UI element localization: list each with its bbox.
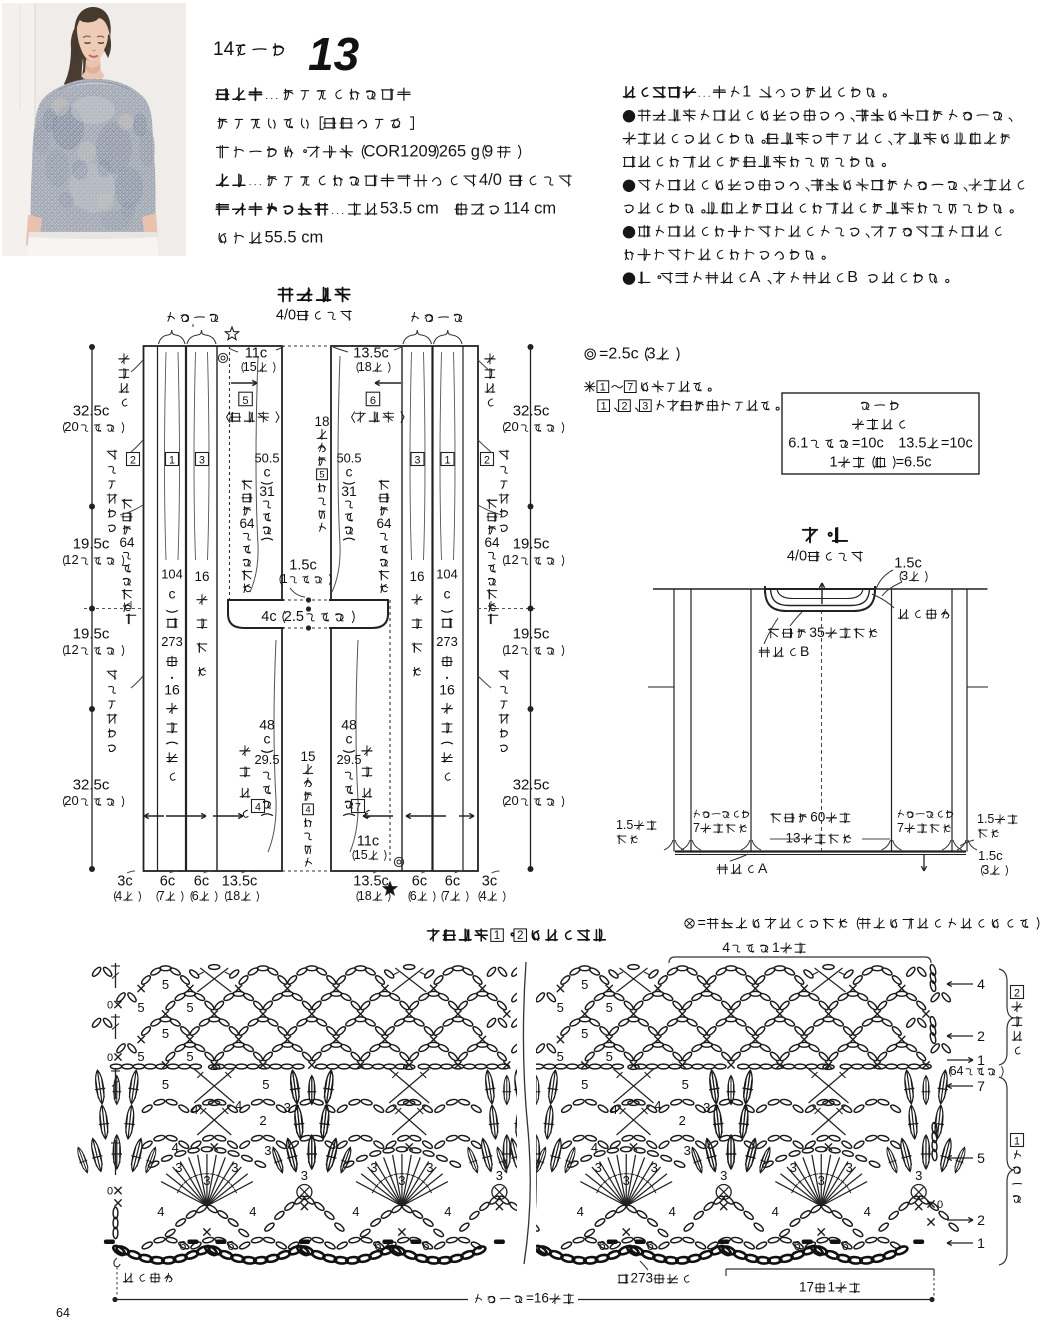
svg-text:17: 17 xyxy=(799,1280,814,1295)
svg-text:3: 3 xyxy=(415,455,421,467)
svg-text:5: 5 xyxy=(137,1049,144,1064)
svg-text:4: 4 xyxy=(610,1102,617,1117)
svg-text:12: 12 xyxy=(504,642,518,657)
svg-text:18: 18 xyxy=(314,414,329,429)
svg-text:6c: 6c xyxy=(194,873,209,889)
svg-text:2: 2 xyxy=(977,1212,985,1228)
svg-text:1.5c: 1.5c xyxy=(289,557,316,573)
svg-text:7: 7 xyxy=(693,821,700,835)
svg-text:7: 7 xyxy=(355,802,361,814)
svg-text:c: c xyxy=(264,730,271,746)
svg-text:B: B xyxy=(847,269,858,286)
svg-text:2: 2 xyxy=(977,1028,985,1044)
svg-text:55.5 cm: 55.5 cm xyxy=(265,228,324,246)
svg-text:13: 13 xyxy=(786,831,801,846)
svg-text:13.5c: 13.5c xyxy=(222,873,257,889)
svg-text:7: 7 xyxy=(158,889,165,903)
svg-text:7: 7 xyxy=(897,821,904,835)
svg-text:1: 1 xyxy=(742,84,751,101)
svg-text:3: 3 xyxy=(175,1160,182,1175)
svg-text:3: 3 xyxy=(651,1160,658,1175)
svg-text:3: 3 xyxy=(623,1173,630,1188)
svg-text:4: 4 xyxy=(191,1102,198,1117)
svg-text:2: 2 xyxy=(621,400,627,412)
svg-text:5: 5 xyxy=(162,1026,169,1041)
svg-text:=10c: =10c xyxy=(852,435,884,451)
svg-text:19.5c: 19.5c xyxy=(73,536,110,553)
svg-text:6c: 6c xyxy=(412,873,427,889)
svg-text:16: 16 xyxy=(439,682,455,698)
svg-text:3: 3 xyxy=(790,1160,797,1175)
svg-text:3c: 3c xyxy=(482,873,497,889)
svg-text:4: 4 xyxy=(157,1204,164,1219)
svg-text:3: 3 xyxy=(199,455,205,467)
svg-text:60: 60 xyxy=(810,810,825,825)
svg-text:5: 5 xyxy=(977,1150,985,1166)
svg-text:1.5c: 1.5c xyxy=(978,848,1003,863)
svg-text:4: 4 xyxy=(977,976,985,992)
svg-text:5: 5 xyxy=(162,1077,169,1092)
svg-text:4: 4 xyxy=(305,805,310,816)
svg-text:53.5 cm: 53.5 cm xyxy=(380,200,439,218)
svg-text:3: 3 xyxy=(846,1160,853,1175)
svg-text:13.5: 13.5 xyxy=(898,435,926,451)
svg-text:16: 16 xyxy=(164,682,180,698)
svg-text:31: 31 xyxy=(259,483,275,499)
svg-text:13: 13 xyxy=(308,28,360,80)
svg-text:32.5c: 32.5c xyxy=(513,777,550,794)
svg-text:3: 3 xyxy=(703,1100,710,1115)
svg-text:64: 64 xyxy=(950,1064,964,1078)
svg-text:273: 273 xyxy=(161,634,182,649)
svg-text:3: 3 xyxy=(720,1168,727,1183)
svg-text:3: 3 xyxy=(595,1160,602,1175)
svg-text:6: 6 xyxy=(410,889,417,903)
svg-text:5: 5 xyxy=(186,1049,193,1064)
svg-text:4: 4 xyxy=(352,1204,359,1219)
svg-text:9: 9 xyxy=(484,142,493,160)
svg-text:3: 3 xyxy=(398,1173,405,1188)
svg-text:20: 20 xyxy=(64,793,78,808)
svg-text:64: 64 xyxy=(119,535,135,550)
svg-text:B: B xyxy=(800,643,809,659)
svg-text:4: 4 xyxy=(115,889,122,903)
svg-text:4: 4 xyxy=(669,1204,676,1219)
svg-text:3: 3 xyxy=(231,1160,238,1175)
svg-text:19.5c: 19.5c xyxy=(513,626,550,643)
svg-text:0: 0 xyxy=(107,1186,113,1198)
svg-text:3: 3 xyxy=(647,346,656,363)
svg-text:3: 3 xyxy=(818,1173,825,1188)
svg-text:31: 31 xyxy=(341,483,357,499)
svg-text:19.5c: 19.5c xyxy=(513,536,550,553)
svg-text:4c: 4c xyxy=(261,609,276,625)
svg-text:3: 3 xyxy=(642,400,648,412)
svg-text:=10c: =10c xyxy=(941,435,973,451)
svg-text:1: 1 xyxy=(169,455,175,467)
svg-text:4: 4 xyxy=(864,1204,871,1219)
svg-text:7: 7 xyxy=(443,889,450,903)
svg-text:15: 15 xyxy=(300,749,315,764)
svg-text:A: A xyxy=(758,860,768,876)
svg-text:3c: 3c xyxy=(117,873,132,889)
svg-text:6.1: 6.1 xyxy=(788,435,808,451)
svg-text:16: 16 xyxy=(409,569,424,584)
svg-text:12: 12 xyxy=(64,642,78,657)
svg-text:4: 4 xyxy=(722,939,730,955)
svg-text:A: A xyxy=(750,269,761,286)
svg-text:64: 64 xyxy=(376,516,392,531)
svg-text:19.5c: 19.5c xyxy=(73,626,110,643)
svg-text:c: c xyxy=(169,586,176,602)
svg-text:5: 5 xyxy=(581,977,588,992)
svg-text:2: 2 xyxy=(130,455,136,467)
svg-text:20: 20 xyxy=(64,419,78,434)
svg-text:64: 64 xyxy=(56,1306,70,1320)
svg-text:104: 104 xyxy=(436,567,457,582)
svg-text:104: 104 xyxy=(161,567,182,582)
svg-text:4: 4 xyxy=(577,1204,584,1219)
svg-text:4/0: 4/0 xyxy=(276,307,296,323)
svg-text:16: 16 xyxy=(194,569,209,584)
svg-text:6c: 6c xyxy=(160,873,175,889)
svg-text:=16: =16 xyxy=(526,1291,549,1306)
svg-text:4: 4 xyxy=(654,1098,661,1113)
svg-text:COR1209: COR1209 xyxy=(364,142,437,160)
svg-text:5: 5 xyxy=(186,1000,193,1015)
svg-text:5: 5 xyxy=(319,470,324,481)
svg-text:3: 3 xyxy=(496,1168,503,1183)
svg-text:3: 3 xyxy=(203,1173,210,1188)
svg-text:4: 4 xyxy=(255,802,261,814)
svg-text:1: 1 xyxy=(281,572,288,586)
svg-text:18: 18 xyxy=(358,889,372,903)
svg-text:4: 4 xyxy=(480,889,487,903)
svg-text:35: 35 xyxy=(809,624,825,640)
svg-text:5: 5 xyxy=(581,1026,588,1041)
svg-text:7: 7 xyxy=(627,381,633,393)
svg-text:=: = xyxy=(698,915,706,931)
svg-text:20: 20 xyxy=(504,793,518,808)
svg-text:3: 3 xyxy=(426,1160,433,1175)
svg-text:12: 12 xyxy=(64,552,78,567)
svg-text:6: 6 xyxy=(192,889,199,903)
svg-text:4: 4 xyxy=(444,1204,451,1219)
svg-text:=6.5c: =6.5c xyxy=(896,454,932,470)
svg-text:c: c xyxy=(444,586,451,602)
svg-text:5: 5 xyxy=(557,1049,564,1064)
svg-text:2: 2 xyxy=(484,455,490,467)
svg-text:20: 20 xyxy=(504,419,518,434)
svg-text:4: 4 xyxy=(772,1204,779,1219)
svg-text:5: 5 xyxy=(262,1077,269,1092)
svg-text:5: 5 xyxy=(137,1000,144,1015)
svg-text:64: 64 xyxy=(239,516,255,531)
svg-text:3: 3 xyxy=(915,1168,922,1183)
svg-text:1.5: 1.5 xyxy=(616,818,633,832)
svg-text:32.5c: 32.5c xyxy=(513,403,550,420)
svg-text:5: 5 xyxy=(606,1049,613,1064)
svg-text:1: 1 xyxy=(445,455,451,467)
svg-text:0: 0 xyxy=(107,1000,113,1012)
svg-text:4: 4 xyxy=(235,1098,242,1113)
svg-text:2: 2 xyxy=(259,1113,266,1128)
svg-text:3: 3 xyxy=(684,1143,691,1158)
svg-text:3: 3 xyxy=(284,1100,291,1115)
svg-text:1: 1 xyxy=(830,454,838,470)
svg-text:273: 273 xyxy=(631,1271,654,1286)
svg-text:265 g: 265 g xyxy=(439,142,480,160)
svg-text:1: 1 xyxy=(977,1235,985,1251)
svg-text:32.5c: 32.5c xyxy=(73,777,110,794)
svg-text:6c: 6c xyxy=(445,873,460,889)
svg-text:6: 6 xyxy=(370,395,376,407)
svg-text:1: 1 xyxy=(494,930,500,942)
svg-text:2: 2 xyxy=(517,930,523,942)
svg-text:1: 1 xyxy=(828,1280,836,1295)
svg-text:64: 64 xyxy=(484,535,500,550)
svg-text:3: 3 xyxy=(982,863,989,877)
svg-text:29.5: 29.5 xyxy=(336,752,361,767)
svg-text:12: 12 xyxy=(504,552,518,567)
svg-text:1: 1 xyxy=(772,939,780,955)
svg-text:4: 4 xyxy=(249,1204,256,1219)
svg-text:114 cm: 114 cm xyxy=(503,200,556,218)
svg-text:18: 18 xyxy=(358,360,372,374)
svg-text:18: 18 xyxy=(226,889,240,903)
svg-text:1.5: 1.5 xyxy=(977,812,994,826)
svg-text:3: 3 xyxy=(370,1160,377,1175)
svg-text:15: 15 xyxy=(243,360,257,374)
svg-text:0: 0 xyxy=(937,1199,943,1211)
svg-text:29.5: 29.5 xyxy=(254,752,279,767)
svg-text:4/0: 4/0 xyxy=(787,548,807,564)
svg-text:=2.5c: =2.5c xyxy=(599,346,639,363)
svg-text:2: 2 xyxy=(679,1113,686,1128)
svg-text:3: 3 xyxy=(901,568,908,583)
svg-text:273: 273 xyxy=(436,634,457,649)
svg-text:c: c xyxy=(264,464,271,480)
svg-text:5: 5 xyxy=(242,395,248,407)
svg-text:5: 5 xyxy=(682,1077,689,1092)
svg-text:13.5c: 13.5c xyxy=(353,873,388,889)
svg-text:32.5c: 32.5c xyxy=(73,403,110,420)
svg-text:15: 15 xyxy=(354,848,368,862)
svg-text:5: 5 xyxy=(606,1000,613,1015)
svg-text:1: 1 xyxy=(601,400,607,412)
svg-text:5: 5 xyxy=(162,977,169,992)
svg-text:7: 7 xyxy=(977,1078,985,1094)
svg-text:c: c xyxy=(346,464,353,480)
svg-text:1: 1 xyxy=(977,1052,985,1068)
svg-text:14: 14 xyxy=(213,39,235,60)
svg-text:5: 5 xyxy=(557,1000,564,1015)
svg-text:3: 3 xyxy=(301,1168,308,1183)
svg-text:4/0: 4/0 xyxy=(479,171,502,189)
svg-text:1: 1 xyxy=(600,381,606,393)
svg-text:c: c xyxy=(346,730,353,746)
svg-text:2.5: 2.5 xyxy=(284,609,304,625)
svg-text:2: 2 xyxy=(1014,988,1020,1000)
svg-text:1: 1 xyxy=(1014,1136,1020,1148)
svg-text:5: 5 xyxy=(581,1077,588,1092)
svg-text:3: 3 xyxy=(264,1143,271,1158)
svg-text:0: 0 xyxy=(107,1052,113,1064)
